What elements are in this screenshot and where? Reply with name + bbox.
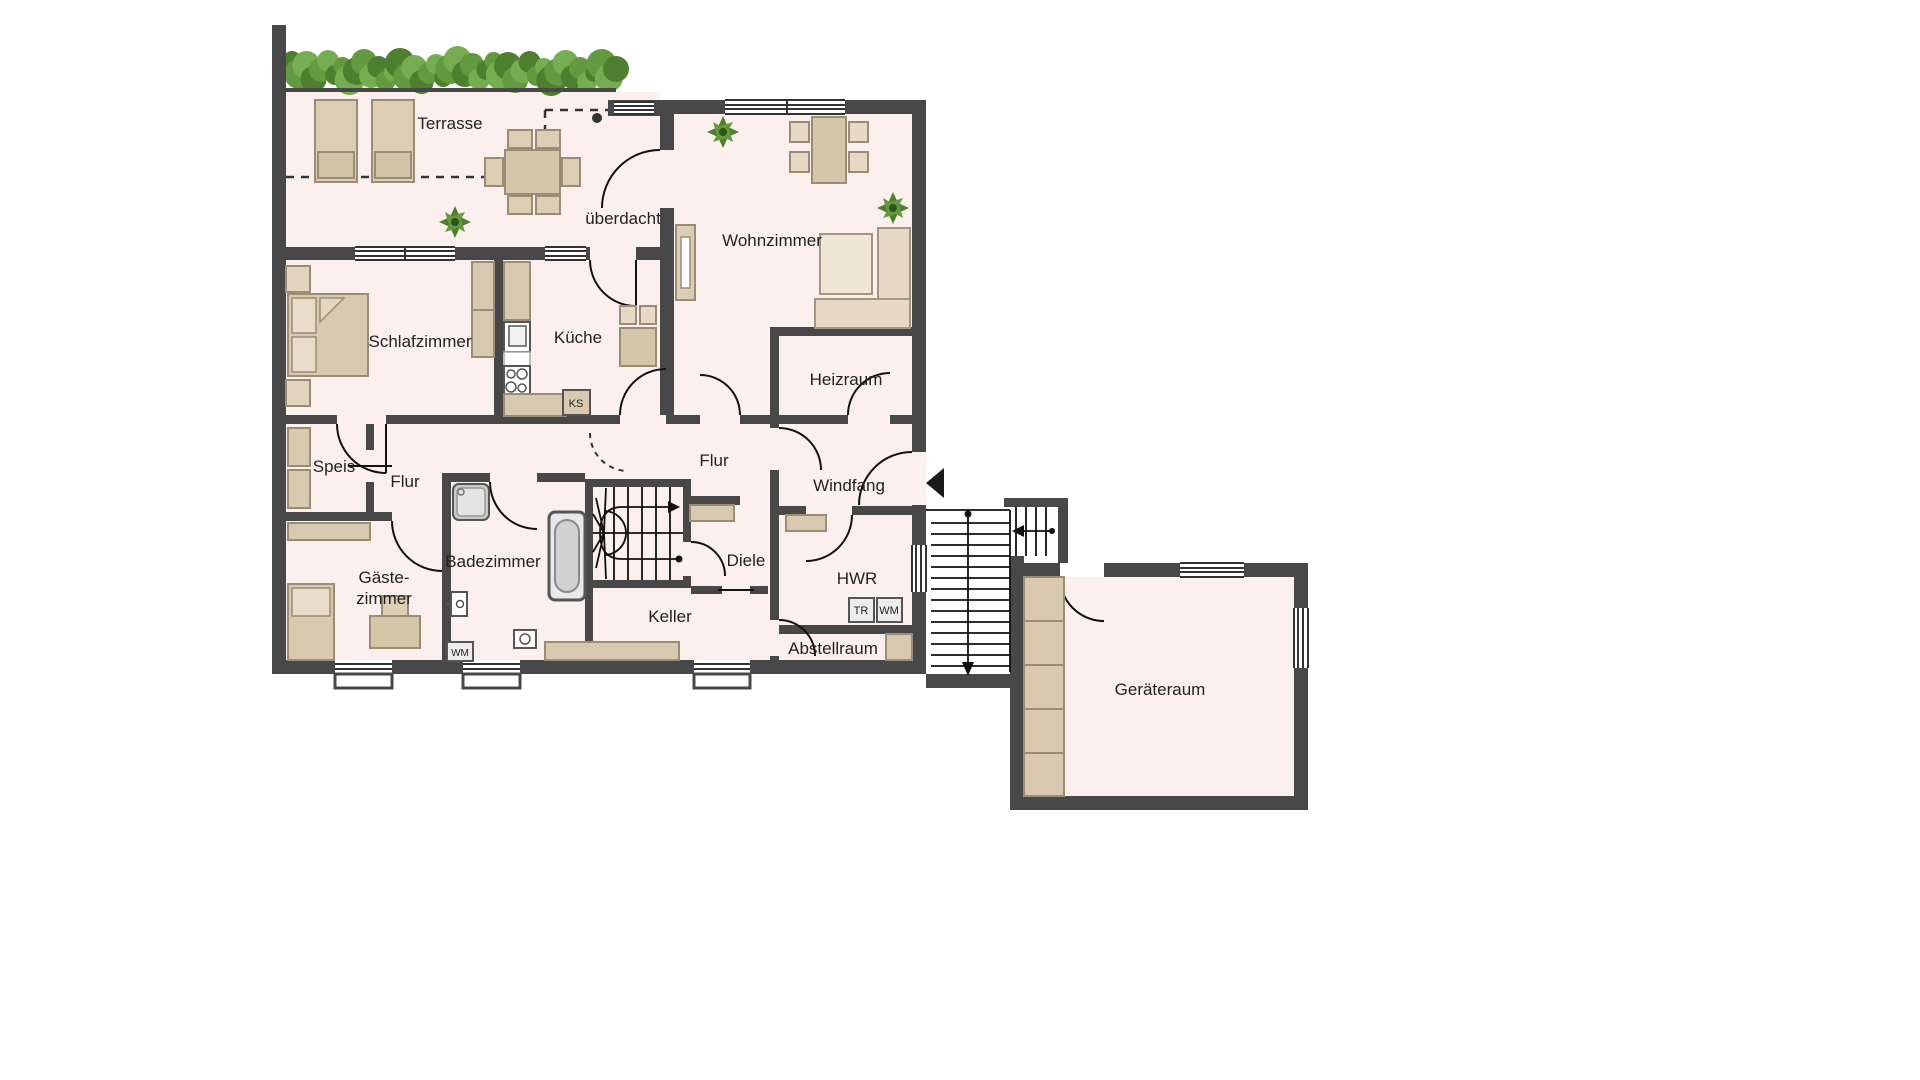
room-label-geraeteraum: Geräteraum — [1115, 680, 1206, 699]
room-label-kueche: Küche — [554, 328, 602, 347]
wall-heater — [676, 225, 695, 300]
room-label-wohnzimmer: Wohnzimmer — [722, 231, 822, 250]
room-label-heizraum: Heizraum — [810, 370, 883, 389]
abstellraum-shelf — [886, 634, 912, 660]
room-label-ueberdacht: überdacht — [585, 209, 661, 228]
hwr-shelf — [786, 515, 826, 531]
room-label-hwr: HWR — [837, 569, 878, 588]
room-label-badezimmer: Badezimmer — [445, 552, 541, 571]
geraeteraum-shelves — [1024, 577, 1064, 796]
room-label-terrasse: Terrasse — [417, 114, 482, 133]
washer-box: WM — [877, 598, 902, 622]
washer-label: WM — [879, 605, 899, 617]
shower — [453, 484, 489, 520]
corner-sofa — [815, 228, 910, 328]
room-label-keller: Keller — [648, 607, 692, 626]
room-label-flur-mitte: Flur — [699, 451, 729, 470]
room-label-gaestezimmer-2: zimmer — [356, 589, 412, 608]
room-label-gaestezimmer-1: Gäste- — [358, 568, 409, 587]
room-label-diele: Diele — [727, 551, 766, 570]
outdoor-stairs-dot — [965, 511, 972, 518]
washer-bad-label: WM — [451, 648, 469, 659]
stair-start-dot — [676, 556, 683, 563]
fridge-label: KS — [569, 398, 584, 410]
entrance-arrow-icon — [926, 468, 944, 498]
room-label-abstellraum: Abstellraum — [788, 639, 878, 658]
side-stairs-arrowhead — [1012, 525, 1024, 537]
room-label-flur-links: Flur — [390, 472, 420, 491]
side-stairs-dot — [1049, 528, 1055, 534]
roof-post-dot — [592, 113, 602, 123]
dryer-box: TR — [849, 598, 874, 622]
toilet — [514, 630, 536, 648]
keller-counter — [545, 642, 679, 660]
outdoor-stairs-down-arrowhead — [962, 662, 974, 676]
room-label-schlafzimmer: Schlafzimmer — [369, 332, 472, 351]
dryer-label: TR — [854, 605, 869, 617]
floor-plan: KS WM T — [0, 0, 1920, 1080]
diele-shelf — [690, 505, 734, 521]
fridge-box: KS — [563, 390, 590, 415]
bathtub — [549, 512, 585, 600]
floorplan-canvas: KS WM T — [0, 0, 1920, 1080]
outdoor-stairs — [926, 510, 1010, 672]
room-label-speis: Speis — [313, 457, 356, 476]
washer-bad-box: WM — [447, 642, 473, 661]
room-label-windfang: Windfang — [813, 476, 885, 495]
